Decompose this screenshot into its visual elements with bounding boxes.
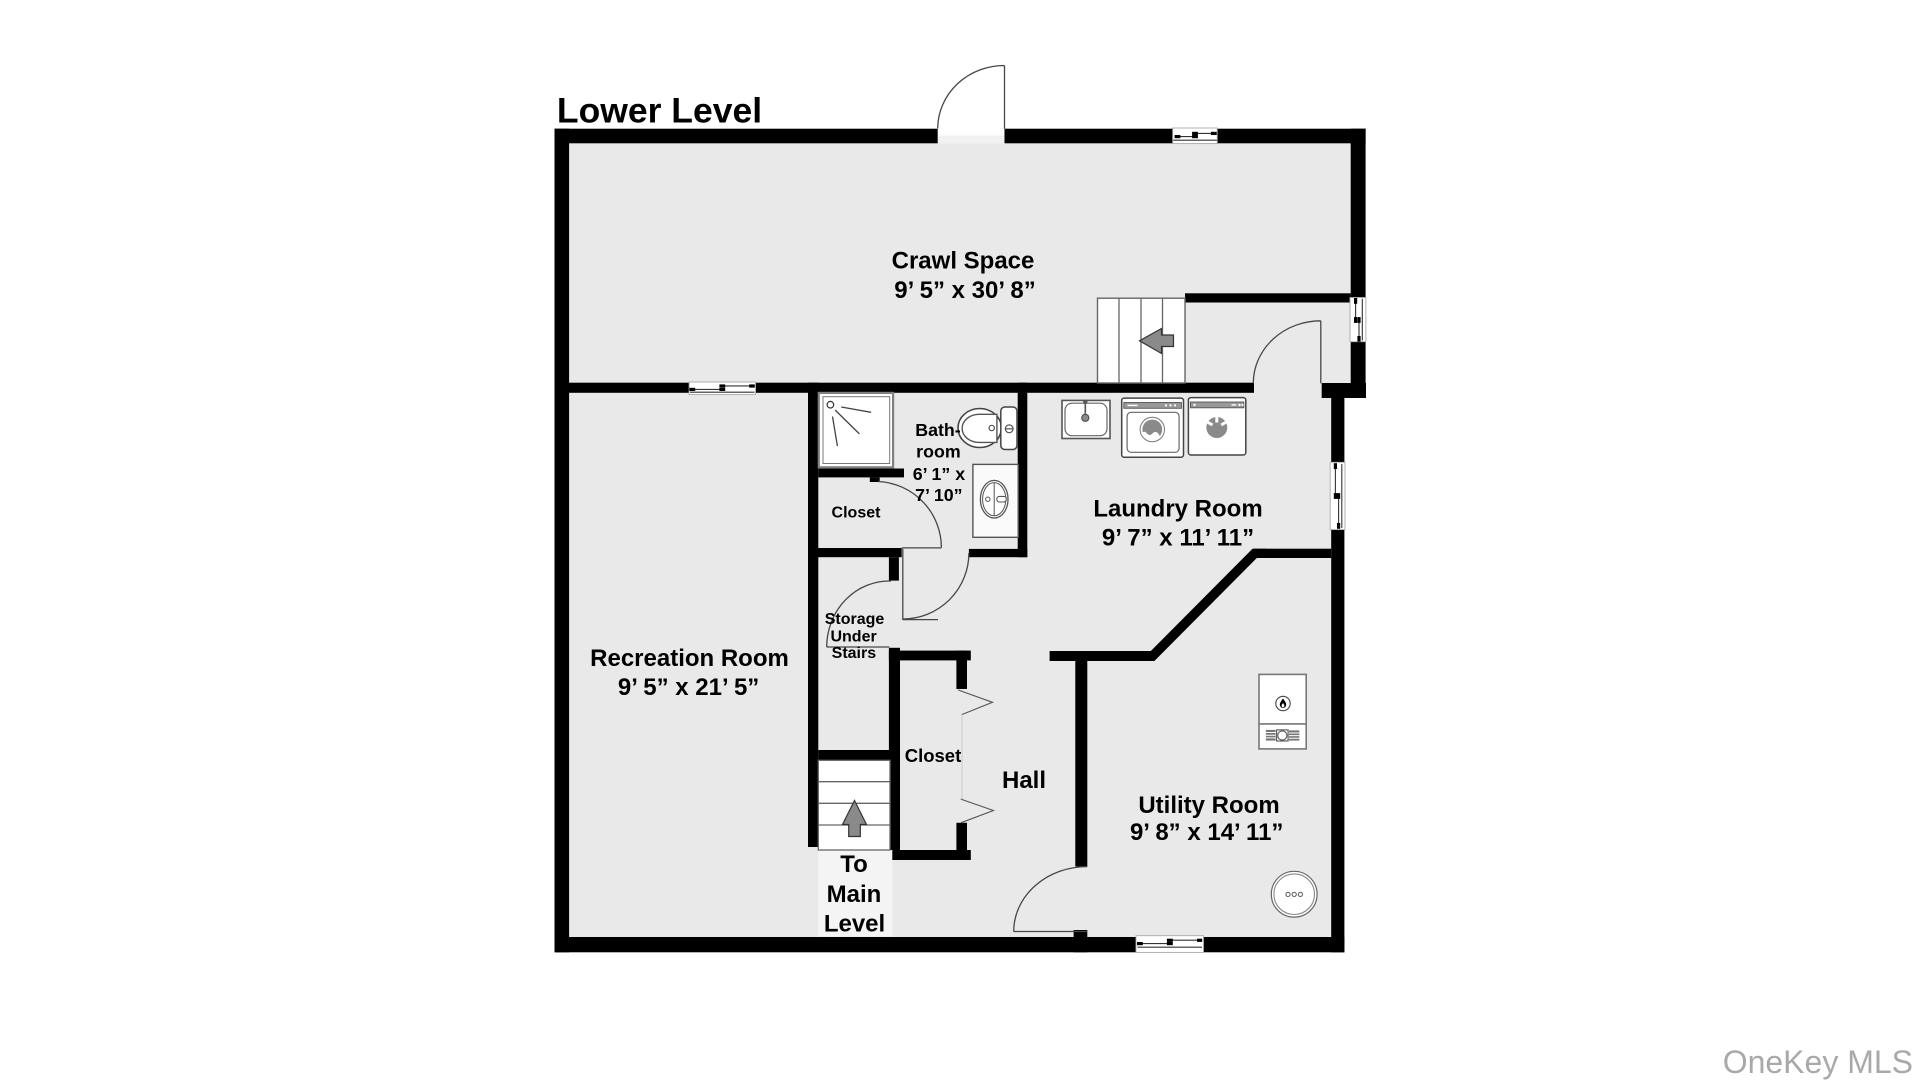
svg-text:9’ 5” x 21’ 5”: 9’ 5” x 21’ 5” xyxy=(618,674,759,701)
svg-text:Laundry Room: Laundry Room xyxy=(1093,496,1262,523)
svg-text:6’ 1” x: 6’ 1” x xyxy=(913,464,966,484)
svg-text:Main: Main xyxy=(827,881,882,908)
svg-text:Utility Room: Utility Room xyxy=(1138,792,1279,819)
svg-text:Lower Level: Lower Level xyxy=(557,91,762,131)
svg-text:Storage: Storage xyxy=(825,611,885,628)
svg-text:Bath-: Bath- xyxy=(915,420,961,440)
svg-text:9’ 5” x 30’ 8”: 9’ 5” x 30’ 8” xyxy=(894,277,1035,304)
svg-text:room: room xyxy=(916,442,960,462)
svg-text:7’ 10”: 7’ 10” xyxy=(915,485,962,505)
svg-text:Stairs: Stairs xyxy=(832,645,877,662)
svg-text:Level: Level xyxy=(824,911,885,938)
svg-text:Closet: Closet xyxy=(905,745,962,766)
svg-text:To: To xyxy=(840,851,868,878)
svg-text:Recreation Room: Recreation Room xyxy=(590,645,789,672)
svg-text:9’ 8” x 14’ 11”: 9’ 8” x 14’ 11” xyxy=(1130,819,1283,846)
svg-text:Hall: Hall xyxy=(1002,767,1046,794)
svg-text:9’ 7” x 11’ 11”: 9’ 7” x 11’ 11” xyxy=(1102,525,1254,552)
svg-text:OneKey MLS: OneKey MLS xyxy=(1723,1044,1913,1080)
svg-text:Under: Under xyxy=(830,629,876,646)
svg-text:Closet: Closet xyxy=(832,505,882,522)
svg-text:Crawl Space: Crawl Space xyxy=(892,247,1035,274)
